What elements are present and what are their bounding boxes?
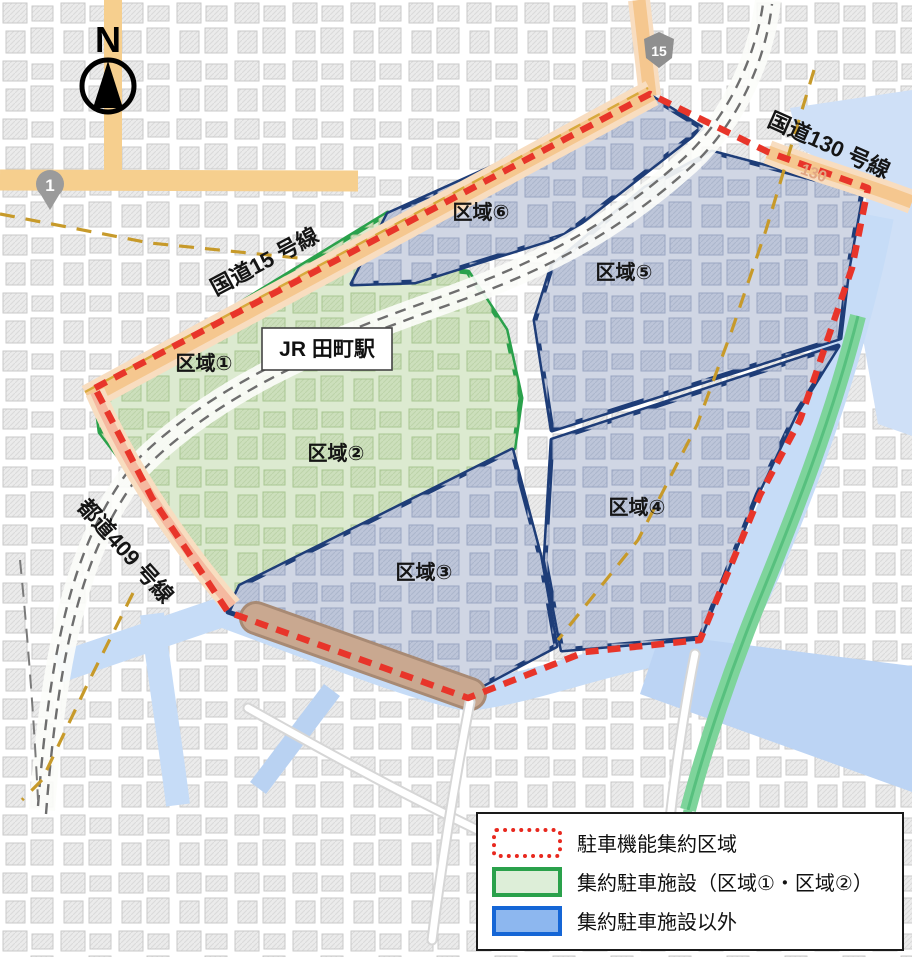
zone1-label: 区域① xyxy=(176,351,233,375)
legend-label-consolidated: 集約駐車施設（区域①・区域②） xyxy=(577,867,873,896)
zone5-label: 区域⑤ xyxy=(596,260,653,284)
legend-swatch-red-dotted xyxy=(492,828,562,858)
legend-label-other: 集約駐車施設以外 xyxy=(577,906,737,935)
legend: 駐車機能集約区域 集約駐車施設（区域①・区域②） 集約駐車施設以外 xyxy=(476,812,904,951)
north-letter: N xyxy=(95,19,121,60)
station-label-box: JR 田町駅 xyxy=(262,328,392,370)
zone6-label: 区域⑥ xyxy=(453,200,510,224)
shield-1-label: 1 xyxy=(45,176,54,195)
zone3-label: 区域③ xyxy=(396,560,453,584)
zone4-label: 区域④ xyxy=(609,495,666,519)
zone2-label: 区域② xyxy=(308,441,365,465)
legend-label-district: 駐車機能集約区域 xyxy=(577,828,737,857)
legend-swatch-green xyxy=(492,867,562,897)
shield-15-label: 15 xyxy=(651,43,667,59)
legend-row-consolidated: 集約駐車施設（区域①・区域②） xyxy=(492,867,902,897)
legend-row-district: 駐車機能集約区域 xyxy=(492,828,902,858)
legend-swatch-blue xyxy=(492,906,562,936)
map-screenshot: 1 15 130 国道15 号線 国道130 号線 都道409 号線 区域① 区… xyxy=(0,0,912,957)
station-label: JR 田町駅 xyxy=(279,338,376,361)
legend-row-other: 集約駐車施設以外 xyxy=(492,906,902,936)
